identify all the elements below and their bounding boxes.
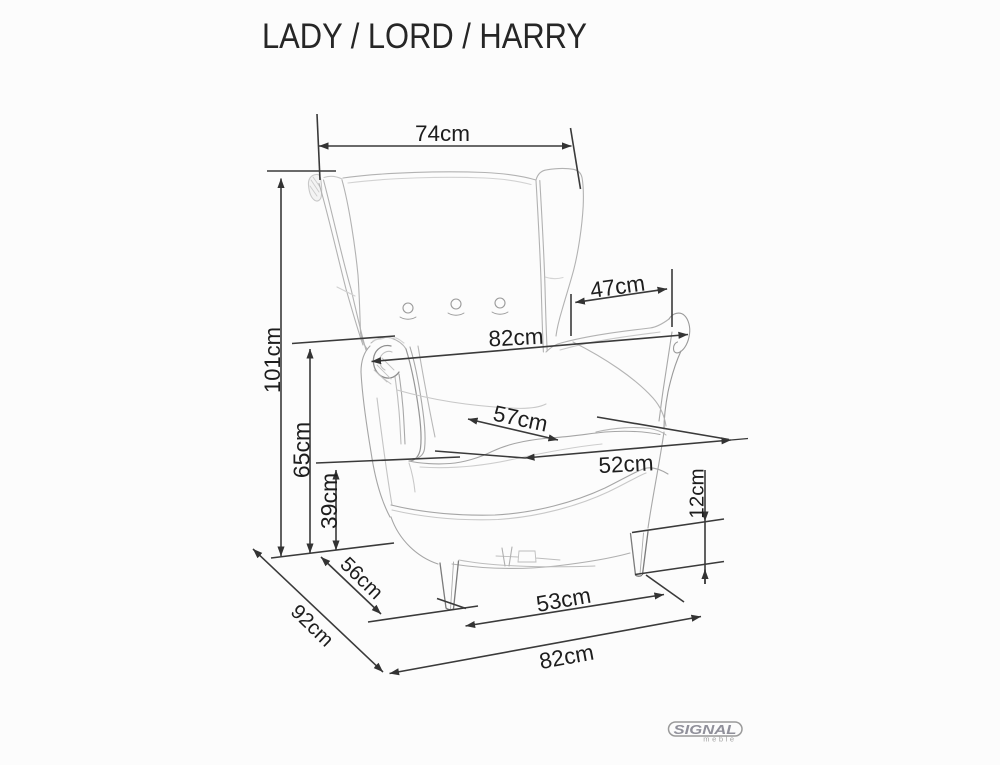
- svg-text:74cm: 74cm: [415, 121, 470, 146]
- svg-text:82cm: 82cm: [488, 324, 544, 352]
- svg-text:39cm: 39cm: [316, 473, 342, 529]
- svg-text:LADY / LORD / HARRY: LADY / LORD / HARRY: [262, 16, 587, 56]
- svg-text:65cm: 65cm: [289, 422, 315, 478]
- svg-text:meble: meble: [703, 735, 736, 744]
- svg-text:101cm: 101cm: [260, 327, 285, 393]
- svg-text:52cm: 52cm: [598, 450, 654, 478]
- svg-text:12cm: 12cm: [686, 468, 709, 518]
